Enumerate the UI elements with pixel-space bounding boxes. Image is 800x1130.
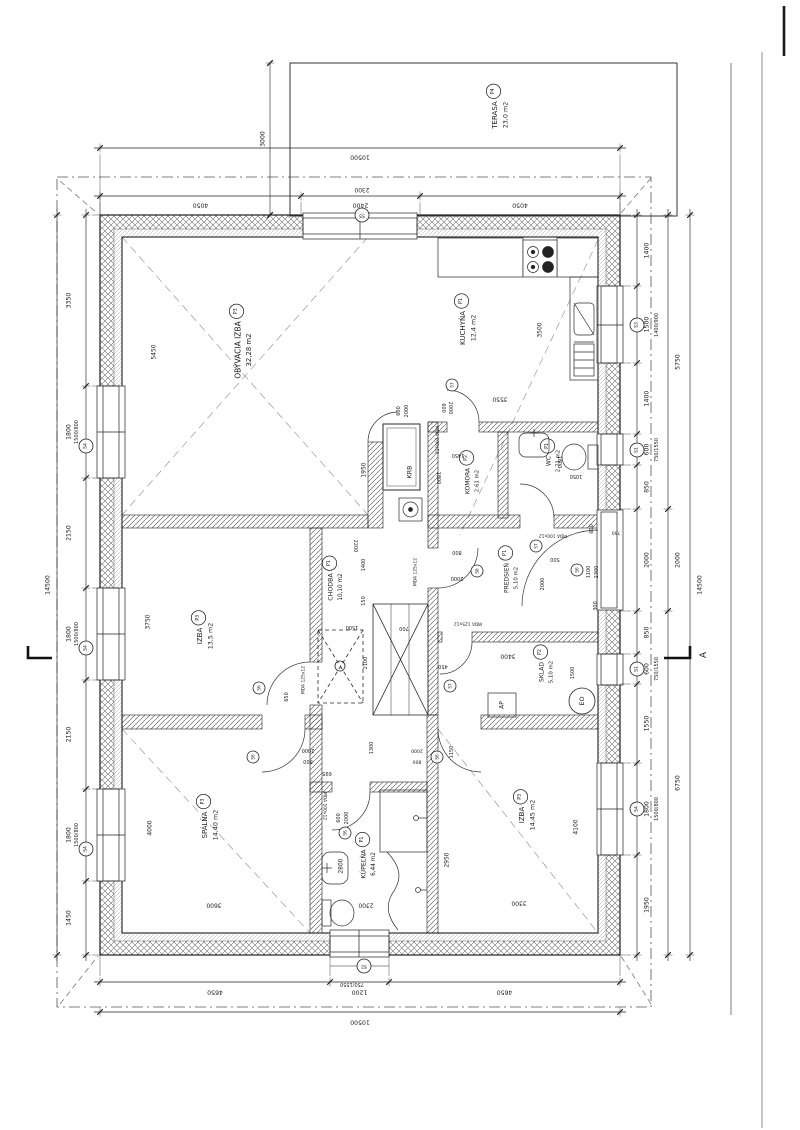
type-mark-label: S6 — [435, 754, 440, 760]
type-mark-s6d: S6 — [431, 751, 443, 763]
annotation-wr4: 1500/800 — [654, 797, 660, 821]
stove-icon — [523, 240, 557, 277]
room-name: SKLAD — [539, 662, 546, 682]
type-mark-label: S5 — [359, 213, 365, 219]
annotation-d2000p: 2000 — [451, 575, 464, 581]
annotation-d600p: 600 — [589, 524, 595, 534]
dim-label: 600 — [644, 444, 651, 456]
room-name: IZBA — [518, 807, 526, 824]
type-mark-label: S7 — [448, 683, 453, 689]
room-area: 32,28 m2 — [245, 333, 253, 366]
room-area: 2,71 m2 — [556, 450, 562, 472]
dim-label: 600 — [644, 663, 651, 675]
room-name: KUCHYŇA — [458, 311, 467, 345]
dim-label: 2150 — [66, 727, 73, 743]
room-name: KRB — [407, 466, 414, 479]
room-name: IZBA — [196, 628, 204, 645]
annotation-d800iz: 800 — [413, 759, 422, 765]
dim-label: 10500 — [350, 1019, 370, 1026]
annotation-d800sp: 800 — [303, 758, 313, 764]
type-mark-s7b: S7 — [530, 540, 542, 552]
room-label-izba2: IZBAP314,45 m2 — [513, 790, 536, 831]
attic-hatch-icon — [318, 630, 363, 703]
type-mark-label: S1 — [634, 666, 640, 672]
annotation-d600k: 600 — [336, 813, 342, 823]
dim-label: 1800 — [66, 424, 73, 440]
annotation-d800p: 800 — [452, 549, 462, 555]
dim-label: 2000 — [675, 552, 682, 568]
room-label-kuchyna: KUCHYŇAP112,4 m2 — [454, 294, 477, 345]
dim-label: 3000 — [260, 131, 267, 147]
type-mark-label: S6 — [575, 567, 580, 573]
room-label-sklad: SKLADP25,10 m2 — [533, 645, 554, 683]
annotation-d4100: 4100 — [573, 819, 580, 834]
annotation-d3300: 3300 — [511, 900, 526, 907]
type-mark-s4l2: S4 — [79, 641, 93, 655]
annotation-mda6: MDA 100x12 — [322, 792, 328, 820]
annotation-seca: A — [699, 651, 709, 658]
room-label-wc: WCP12,71 m2 — [540, 439, 561, 472]
room-name: KÚPEĽŇA — [359, 849, 368, 879]
dim-label: 14500 — [45, 575, 52, 595]
dim-label: 4650 — [497, 989, 513, 996]
room-tag: P3 — [233, 308, 239, 314]
terasa-outline — [290, 63, 677, 216]
annotation-wl3: 1500/800 — [74, 823, 80, 847]
room-label-kupelna: KÚPEĽŇAP16,44 m2 — [355, 832, 377, 878]
room-name: WC — [546, 456, 553, 466]
room-label-predsien: PREDSIEŇP15,10 m2 — [498, 546, 519, 593]
room-area: 6,44 m2 — [371, 852, 377, 876]
annotation-d695: 695 — [322, 770, 332, 776]
annotation-d1450: 1450 — [452, 452, 465, 458]
annotation-ap: AP — [499, 701, 506, 709]
room-label-krb: KRB — [407, 466, 414, 479]
room-area: 14,45 m2 — [529, 800, 537, 831]
room-area: 10,10 m2 — [338, 573, 344, 601]
type-mark-label: S2 — [361, 964, 367, 970]
annotation-d2950: 2950 — [444, 852, 451, 867]
annotation-d2000e: 2000 — [540, 578, 546, 591]
room-label-obyvacia: OBÝVACIA IZBAP332,28 m2 — [229, 304, 253, 379]
annotation-d2300b: 2300 — [358, 902, 373, 909]
type-mark-label: S6 — [257, 685, 262, 691]
roof-eaves-outline — [57, 177, 651, 1007]
annotation-d450: 450 — [438, 663, 448, 669]
room-label-spalna: SPÁLŇAP314,40 m2 — [196, 794, 219, 840]
room-tag: P3 — [195, 615, 201, 621]
type-mark-label: S8 — [475, 568, 480, 574]
kitchen-sink-icon — [574, 303, 594, 376]
dim-chain-bot_total: 10500 — [94, 1008, 626, 1026]
dim-label: 4050 — [512, 202, 528, 209]
room-tag: P1 — [544, 443, 550, 449]
room-name: TERASA — [491, 101, 499, 130]
room-area: 23,0 m2 — [502, 102, 510, 129]
type-mark-s4l1: S4 — [79, 439, 93, 453]
type-mark-s7a: S7 — [446, 379, 458, 391]
room-area: 5,10 m2 — [514, 567, 520, 589]
annotation-d150: 150 — [361, 596, 367, 606]
dim-label: 4050 — [193, 202, 209, 209]
dim-label: 1800 — [66, 626, 73, 642]
dim-label: 2000 — [644, 552, 651, 568]
annotation-wl1: 1500/800 — [74, 420, 80, 444]
annotation-d2000a: 2000 — [404, 405, 410, 418]
roof-projection-lines — [122, 237, 598, 933]
dim-label: 10500 — [350, 154, 370, 161]
fixtures — [318, 238, 598, 930]
dim-chain-right_total: 14500 — [686, 209, 704, 961]
annotation-d4000: 4000 — [147, 820, 154, 835]
annotation-d2000iz: 2000 — [411, 748, 423, 754]
room-label-chodba: CHODBAP110,10 m2 — [322, 556, 344, 601]
annotation-mda5: MDA 125x12 — [301, 666, 307, 694]
annotation-wb1: 750/1550 — [340, 981, 364, 987]
dim-label: 2400 — [353, 202, 369, 209]
dim-label: 1450 — [66, 910, 73, 926]
dim-label: 4650 — [207, 989, 223, 996]
annotation-d1500c: 1500 — [346, 624, 359, 630]
dim-chain-terasa_depth: 3000 — [260, 60, 275, 218]
type-mark-eo: EO — [569, 688, 595, 714]
type-mark-s6a: S6 — [571, 564, 583, 576]
annotation-d750p: 750 — [612, 530, 621, 536]
annotation-wr1: 1400/900 — [654, 313, 660, 337]
room-tag: P1 — [359, 837, 365, 843]
type-mark-label: S4 — [83, 846, 89, 852]
dim-label: 2150 — [66, 525, 73, 541]
type-mark-s6e: S6 — [339, 827, 351, 839]
annotation-d1500s: 1500 — [570, 667, 576, 680]
wardrobe-icon — [373, 604, 428, 715]
annotation-d300: 300 — [593, 601, 599, 611]
annotation-d3400: 3400 — [500, 653, 515, 660]
annotation-d500: 500 — [550, 556, 560, 562]
annotation-d600a: 600 — [396, 406, 402, 416]
annotation-d1100: 1100 — [586, 566, 592, 579]
type-mark-label: S4 — [83, 645, 89, 651]
annotation-d3750: 3750 — [145, 614, 152, 629]
type-mark-s7c: S7 — [444, 680, 456, 692]
dim-label: 1400 — [644, 391, 651, 407]
room-area: 14,40 m2 — [212, 810, 220, 841]
type-mark-label: EO — [578, 696, 586, 705]
annotation-mda2: MDA 100x12 — [539, 533, 567, 539]
type-mark-s5: S5 — [355, 208, 369, 222]
dim-label: 14500 — [697, 575, 704, 595]
section-marks — [28, 646, 690, 658]
room-tag: P3 — [200, 799, 206, 805]
type-mark-label: S4 — [83, 443, 89, 449]
type-mark-s6b: S6 — [253, 682, 265, 694]
dim-label: 1800 — [644, 801, 651, 817]
type-mark-label: S6 — [343, 830, 348, 836]
room-name: CHODBA — [328, 573, 335, 601]
dim-label: 5750 — [675, 354, 682, 370]
dim-label: 1800 — [66, 827, 73, 843]
scan-artifacts — [731, 6, 784, 1128]
annotation-d1050: 1050 — [570, 473, 583, 479]
annotation-wr2: 750/1550 — [654, 438, 660, 462]
annotation-d3500: 3500 — [537, 322, 544, 337]
room-area: 2,61 m2 — [475, 470, 481, 492]
room-name: OBÝVACIA IZBA — [234, 320, 243, 378]
annotation-d2000b: 2000 — [447, 402, 453, 415]
type-mark-s4r: S4 — [630, 802, 644, 816]
type-mark-label: S7 — [450, 382, 455, 388]
room-name: KOMORA — [465, 467, 472, 494]
annotation-d1400c: 1400 — [361, 559, 367, 572]
dim-chain-right_sub: 575020006750 — [664, 209, 682, 961]
room-area: 12,4 m2 — [470, 315, 478, 342]
room-label-terasa: TERASAP423,0 m2 — [486, 84, 509, 130]
annotation-d1150: 1150 — [449, 746, 455, 759]
type-mark-s1b: S1 — [630, 662, 644, 676]
type-mark-label: S6 — [251, 754, 256, 760]
annotation-d1300: 1300 — [369, 742, 375, 755]
type-mark-s4l3: S4 — [79, 842, 93, 856]
annotation-d700: 700 — [399, 625, 409, 631]
room-name: PREDSIEŇ — [504, 563, 511, 593]
type-mark-s3: S3 — [630, 318, 644, 332]
annotation-d5450: 5450 — [151, 344, 158, 359]
fireplace-icon — [383, 424, 422, 521]
dim-label: 1550 — [644, 716, 651, 732]
annotation-d600b: 600 — [440, 403, 446, 413]
room-area: 5,10 m2 — [549, 661, 555, 683]
annotation-d2300p: 2300 — [594, 566, 600, 579]
wc-toilet-icon — [562, 444, 598, 470]
dim-label: 6750 — [675, 775, 682, 791]
room-area: 13,5 m2 — [207, 623, 215, 650]
annotation-d2000sp: 2000 — [302, 747, 315, 753]
annotation-d2800: 2800 — [338, 858, 345, 873]
type-mark-s6c: S6 — [247, 751, 259, 763]
annotation-wl2: 1500/800 — [74, 622, 80, 646]
dim-label: 1200 — [352, 989, 368, 996]
type-mark-label: S7 — [534, 543, 539, 549]
room-tag: P1 — [458, 298, 464, 304]
dim-label: 1400 — [644, 243, 651, 259]
annotation-mda3: MDA 125x12 — [413, 558, 419, 586]
room-tag: P3 — [517, 794, 523, 800]
room-label-izba1: IZBAP313,5 m2 — [191, 611, 214, 650]
room-name: SPÁLŇA — [200, 811, 209, 838]
bath-toilet-icon — [322, 900, 354, 926]
dim-chain-left_total: 14500 — [45, 209, 62, 961]
dim-label: 3350 — [66, 293, 73, 309]
annotation-mda1: MDA 100x12 — [434, 426, 440, 454]
floor-plan-drawing: 1050040502400405046501200465010500145003… — [0, 0, 800, 1130]
room-tag: P2 — [537, 649, 543, 655]
dim-label: 1500 — [644, 317, 651, 333]
type-mark-label: S3 — [634, 322, 640, 328]
annotation-mda4: MDA 125x12 — [454, 621, 482, 627]
annotation-d2100: 2100 — [363, 657, 369, 670]
annotation-w2300: 2300 — [354, 186, 369, 192]
dim-label: 850 — [644, 627, 651, 639]
room-tag: P4 — [490, 88, 496, 94]
dim-label: 1950 — [644, 897, 651, 913]
scanned-floor-plan-page: 1050040502400405046501200465010500145003… — [0, 0, 800, 1130]
annotation-d2200: 2200 — [352, 540, 358, 553]
annotation-d1950: 1950 — [361, 462, 368, 477]
annotation-d3550: 3550 — [492, 396, 507, 403]
type-mark-s8a: S8 — [471, 565, 483, 577]
annotation-d1800k: 1800 — [435, 472, 441, 485]
annotation-d2000k: 2000 — [344, 812, 350, 825]
annotation-d3600: 3600 — [206, 902, 221, 909]
annotation-wr3: 750/1550 — [654, 657, 660, 681]
room-tag: P2 — [463, 455, 469, 461]
annotation-d650: 650 — [284, 692, 290, 702]
room-tag: P1 — [502, 550, 508, 556]
type-mark-label: S4 — [634, 806, 640, 812]
dim-label: 850 — [644, 481, 651, 493]
shower-icon — [380, 790, 427, 930]
room-tag: P1 — [326, 560, 332, 566]
terasa-dim-line — [267, 60, 273, 218]
type-mark-s1a: S1 — [630, 443, 644, 457]
type-mark-label: S1 — [634, 447, 640, 453]
type-mark-s2: S2 — [357, 959, 371, 973]
